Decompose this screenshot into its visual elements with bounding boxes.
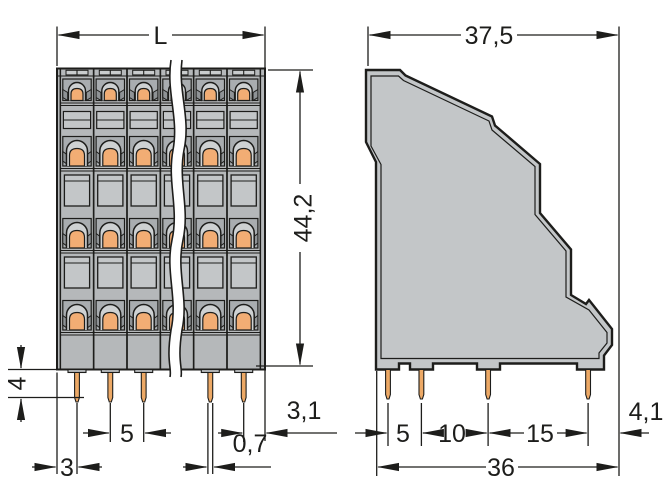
dim-label-last-pin-to-edge-front: 3,1: [287, 397, 322, 425]
dim-label-last-pin-to-edge-side: 4,1: [629, 398, 664, 426]
technical-drawing-canvas: L 44,2 4: [0, 0, 672, 496]
front-view: L 44,2 4: [3, 22, 337, 482]
dim-last-pin-to-edge-front: 3,1: [218, 397, 337, 433]
dim-label-pin-pitch: 5: [120, 420, 134, 448]
dim-pin-pitch: 5: [83, 420, 171, 448]
dim-label-pin-width: 0,7: [233, 430, 268, 458]
front-pins: [68, 370, 253, 403]
dim-label-total-depth: 36: [487, 454, 515, 482]
dim-label-edge-to-first-pin: 3: [60, 454, 74, 482]
front-extension-lines: [57, 373, 244, 475]
dim-pin-width: 0,7: [183, 430, 271, 467]
terminal-block-side-profile: [366, 70, 612, 370]
dim-total-depth: 36: [378, 454, 617, 482]
dim-label-row-spacing-2: 10: [438, 420, 466, 448]
side-pins: [386, 370, 591, 400]
side-view: 37,5 5 10 15 4,1 36: [355, 22, 663, 482]
dim-label-total-length: L: [154, 22, 168, 50]
dim-edge-to-first-pin: 3: [32, 454, 102, 482]
dim-label-row-spacing-1: 5: [396, 420, 410, 448]
dim-label-top-depth: 37,5: [465, 22, 514, 50]
dim-label-row-spacing-3: 15: [526, 420, 554, 448]
dim-label-total-height: 44,2: [289, 194, 317, 243]
dim-label-pin-length: 4: [3, 376, 31, 390]
terminal-block-drawing: L 44,2 4: [0, 0, 672, 496]
dim-pin-row-spacings: 5 10 15 4,1: [355, 398, 663, 448]
